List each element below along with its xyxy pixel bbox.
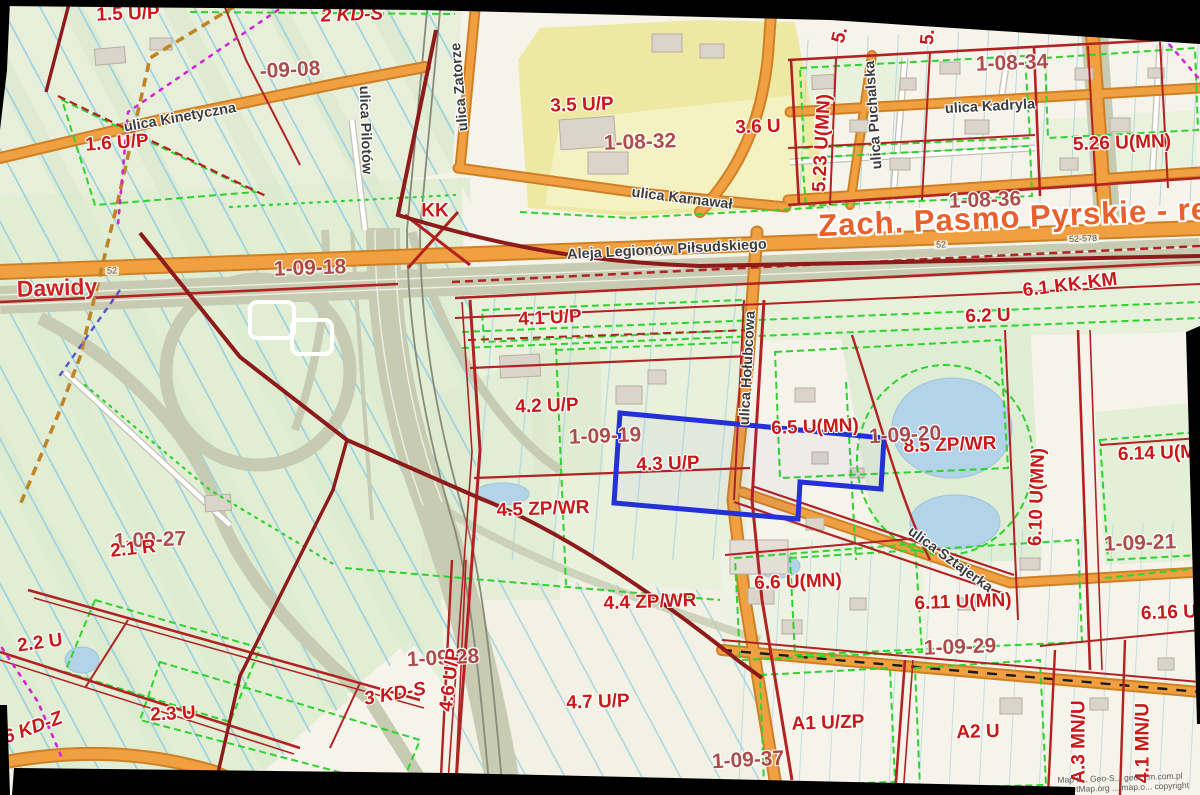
zone-label: KK	[421, 202, 448, 221]
zone-label: 5.23 U(MN)	[810, 93, 834, 192]
street-label: ulica Sztajerka	[905, 525, 995, 596]
zone-label: 4.3 U/P	[636, 453, 700, 474]
zone-label: 4.2 U/P	[515, 395, 579, 416]
street-label: ulica Karnawał	[631, 186, 734, 213]
zone-label: 2.3 U	[150, 703, 196, 724]
road-number-badge: 52	[105, 266, 119, 275]
zone-label: 6.2 U	[965, 306, 1011, 327]
zone-label: 6.5 U(MN)	[771, 416, 859, 438]
zone-label: 5.	[829, 25, 851, 45]
zone-label: 2.1 R	[109, 537, 156, 561]
zone-label: 6 KD-Z	[1, 709, 65, 748]
street-label: ulica Puchalska	[863, 60, 885, 170]
district-label: 1-09-21	[1103, 531, 1176, 555]
place-label: Dawidy	[16, 275, 97, 301]
zone-label: 5.26 U(MN)	[1073, 132, 1172, 154]
zone-label: A1 U/ZP	[791, 712, 864, 734]
district-label: 1-09-20	[868, 423, 941, 448]
street-label: ulica Pilotów	[356, 85, 374, 174]
zone-label: 6.14 U(MN)	[1118, 442, 1200, 464]
road-number-badge: 52	[934, 240, 948, 249]
street-label: ulica Zatorze	[449, 42, 471, 132]
zone-label: 3.6 U	[735, 117, 781, 138]
zone-label: 6.16 U(MN)	[1141, 601, 1200, 623]
zone-label: 5.	[918, 28, 938, 45]
zone-label: 4.4 ZP/WR	[603, 591, 697, 613]
zone-label: 6.1 KK-KM	[1022, 270, 1119, 300]
road-number-badge: 52-578	[1067, 234, 1099, 244]
street-label: ulica Kinetyczna	[123, 101, 237, 135]
zone-label: 3 KD-S	[363, 679, 428, 709]
district-label: 1-09-19	[568, 424, 641, 448]
district-label: 1-09-29	[923, 635, 996, 659]
zone-label: 4.7 U/P	[566, 691, 630, 712]
zone-label: 6.10 U(MN)	[1026, 448, 1048, 547]
map-labels-layer: 1.5 U/P2 KD-S-09-081.6 U/P3.5 U/P1-08-32…	[0, 0, 1200, 795]
zone-label: 1.6 U/P	[85, 131, 150, 154]
district-label: 1-09-18	[273, 256, 346, 280]
zone-label: 1.5 U/P	[96, 3, 160, 24]
district-label: 1-09-37	[711, 748, 784, 773]
zone-label: 3.5 U/P	[550, 94, 614, 115]
district-label: 1-08-34	[975, 51, 1048, 75]
district-label: -09-08	[259, 58, 321, 82]
zone-label: 6.11 U(MN)	[914, 591, 1012, 613]
zone-label: A2 U	[956, 722, 1000, 742]
zone-label: 4.1 U/P	[518, 307, 582, 329]
zone-label: 2.2 U	[16, 630, 64, 655]
district-label: 1-08-32	[603, 130, 676, 154]
zone-label: 6.6 U(MN)	[754, 571, 842, 593]
street-label: ulica Hołubcowa	[738, 310, 758, 425]
zone-label: 2 KD-S	[321, 4, 384, 25]
zone-label: A.3 MN/U	[1070, 700, 1089, 783]
street-label: ulica Kadryla	[945, 97, 1036, 116]
map-viewport[interactable]: 1.5 U/P2 KD-S-09-081.6 U/P3.5 U/P1-08-32…	[0, 0, 1200, 795]
zone-label: 4.5 ZP/WR	[496, 498, 590, 520]
street-label: Aleja Legionów Piłsudskiego	[567, 238, 767, 263]
